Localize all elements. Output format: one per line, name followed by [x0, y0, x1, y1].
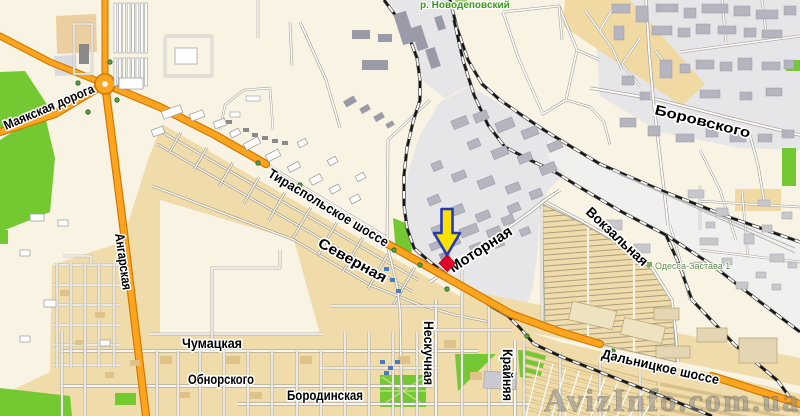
svg-text:р. Новодеповский: р. Новодеповский — [420, 0, 510, 11]
svg-text:Бородинская: Бородинская — [287, 388, 363, 403]
svg-text:Чумацкая: Чумацкая — [182, 336, 242, 351]
svg-text:Одесса-Застава 1: Одесса-Застава 1 — [655, 261, 730, 271]
svg-text:Крайняя: Крайняя — [500, 349, 515, 401]
svg-text:Обнорского: Обнорского — [188, 372, 254, 387]
svg-text:Нескучная: Нескучная — [421, 321, 436, 385]
svg-text:AvizInfo.com.ua: AvizInfo.com.ua — [544, 382, 800, 416]
